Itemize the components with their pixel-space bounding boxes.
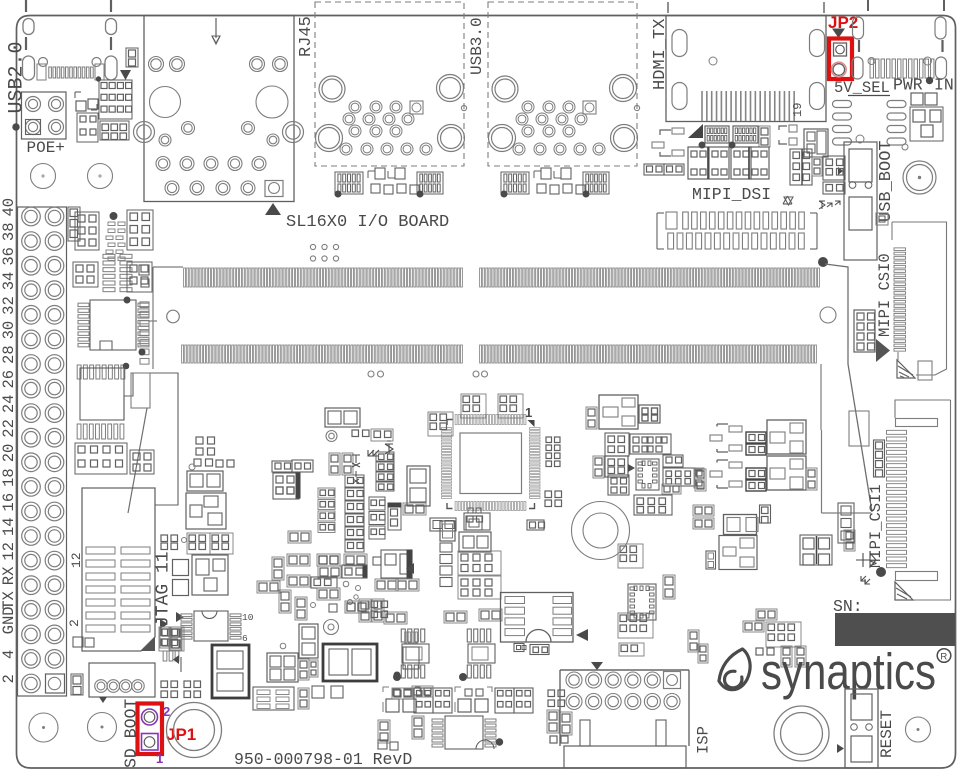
svg-text:RESET: RESET: [878, 710, 896, 758]
svg-text:RX: RX: [0, 566, 18, 585]
svg-text:5V_SEL: 5V_SEL: [834, 79, 890, 97]
svg-text:34: 34: [0, 272, 18, 291]
svg-text:MIPI_DSI: MIPI_DSI: [692, 185, 771, 204]
svg-text:4: 4: [0, 650, 18, 659]
svg-text:40: 40: [0, 198, 18, 217]
svg-text:14: 14: [0, 517, 18, 536]
svg-text:1: 1: [525, 405, 532, 420]
svg-text:USB3.0: USB3.0: [468, 17, 486, 75]
svg-text:RJ45: RJ45: [297, 16, 316, 57]
svg-text:2: 2: [163, 704, 170, 719]
svg-text:16: 16: [0, 493, 18, 512]
svg-text:10: 10: [242, 612, 254, 623]
svg-text:18: 18: [0, 468, 18, 487]
svg-text:12: 12: [0, 542, 18, 561]
svg-text:22: 22: [0, 419, 18, 438]
svg-text:SL16X0 I/O BOARD: SL16X0 I/O BOARD: [286, 213, 449, 232]
svg-text:PWR: PWR: [893, 76, 923, 95]
svg-text:30: 30: [0, 321, 18, 340]
svg-text:JTAG 11: JTAG 11: [154, 551, 174, 627]
svg-text:6: 6: [242, 633, 248, 644]
svg-text:1: 1: [156, 751, 163, 766]
svg-text:IN: IN: [934, 76, 954, 95]
svg-text:26: 26: [0, 370, 18, 389]
svg-text:R: R: [940, 652, 947, 663]
svg-text:950-000798-01 RevD: 950-000798-01 RevD: [234, 750, 412, 769]
svg-text:24: 24: [0, 395, 18, 414]
svg-text:USB_BOOT: USB_BOOT: [877, 140, 896, 222]
svg-text:JP1: JP1: [166, 725, 196, 744]
svg-text:19: 19: [791, 103, 805, 117]
svg-text:GND: GND: [0, 606, 18, 634]
svg-text:2: 2: [67, 619, 82, 627]
svg-text:28: 28: [0, 345, 18, 364]
svg-text:synaptics: synaptics: [761, 643, 936, 700]
svg-text:2: 2: [0, 674, 18, 683]
svg-text:HDMI_TX: HDMI_TX: [651, 19, 670, 90]
svg-text:20: 20: [0, 444, 18, 463]
svg-text:12: 12: [69, 552, 84, 568]
svg-text:36: 36: [0, 247, 18, 266]
svg-text:POE+: POE+: [27, 139, 65, 157]
svg-text:32: 32: [0, 296, 18, 315]
svg-text:MIPI CSI0: MIPI CSI0: [876, 253, 894, 337]
svg-text:ISP: ISP: [695, 726, 713, 754]
svg-text:38: 38: [0, 222, 18, 241]
